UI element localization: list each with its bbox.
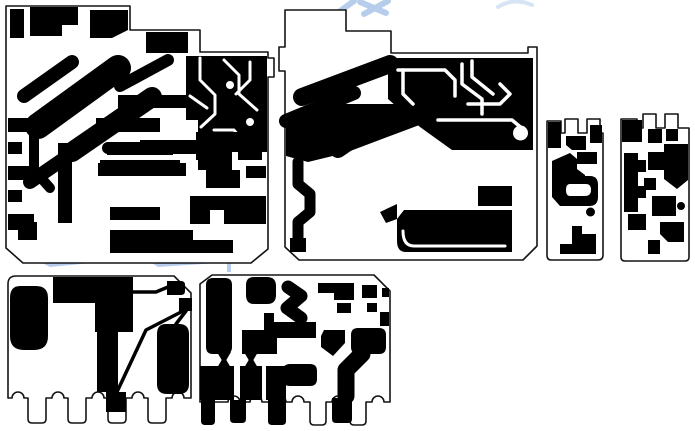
board-bottom-middle xyxy=(200,275,390,425)
pcb-artwork-page xyxy=(0,0,695,431)
board-bottom-left xyxy=(8,276,192,423)
board-top-middle xyxy=(279,10,537,260)
board-top-left xyxy=(6,6,274,263)
pcb-artwork xyxy=(0,0,695,431)
board-small-left xyxy=(547,119,603,260)
board-small-right xyxy=(621,114,689,261)
